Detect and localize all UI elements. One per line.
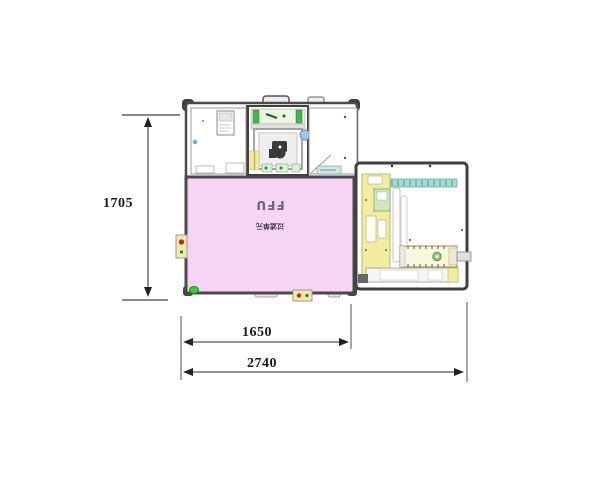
dimension-height: 1705: [103, 115, 180, 300]
dim-height-value: 1705: [103, 196, 133, 211]
green-post: [253, 110, 259, 123]
red-indicator: [179, 240, 184, 245]
equipment-layout-drawing: FFU 过滤单元: [0, 0, 600, 500]
arrowhead-left: [183, 338, 193, 346]
screenshot-root: FFU 过滤单元: [0, 0, 600, 500]
bolt-dot: [344, 116, 346, 118]
green-dot: [280, 167, 283, 170]
bolt-dot: [409, 239, 411, 241]
electrical-box-display: [219, 113, 232, 121]
ffu-sublabel: 过滤单元: [256, 222, 284, 231]
bottom-rail: [358, 268, 458, 283]
dim-total-width-value: 2740: [247, 356, 277, 371]
red-indicator: [297, 293, 301, 297]
corner-block: [358, 274, 368, 283]
arrowhead-down: [144, 287, 152, 297]
bolt-dot: [202, 120, 204, 122]
bolt-dot: [391, 165, 393, 167]
bottom-indicator-box: [293, 290, 312, 301]
floor-fixture: [226, 163, 244, 173]
bolt-dot: [429, 165, 431, 167]
right-bay-wall: [309, 108, 357, 174]
ffu-panel: FFU 过滤单元: [176, 177, 357, 301]
ffu-label: FFU: [255, 198, 284, 212]
right-bay: [309, 108, 357, 174]
yellow-strip: [250, 151, 254, 170]
actuator-rod: [457, 252, 471, 261]
yellow-strip: [255, 151, 259, 170]
green-block-window: [377, 192, 387, 200]
side-module: [356, 163, 471, 289]
arrowhead-right: [339, 338, 349, 346]
floor-fixture: [196, 166, 214, 173]
green-caster: [190, 287, 199, 294]
green-dot: [265, 167, 268, 170]
top-module: [182, 96, 360, 178]
arrowhead-up: [144, 117, 152, 127]
band-dot: [283, 115, 286, 118]
center-bay-robot-cell: [248, 106, 310, 175]
left-indicator-box: [176, 235, 187, 258]
green-indicator: [180, 250, 183, 253]
arrowhead-left: [183, 368, 193, 376]
blue-fitting: [193, 140, 197, 144]
left-bay: [191, 108, 246, 174]
dim-inner-width-value: 1650: [242, 325, 272, 340]
actuator-hub-center: [436, 255, 439, 258]
bolt-dot: [461, 229, 463, 231]
bolt-dot: [344, 157, 346, 159]
green-indicator: [305, 294, 308, 297]
ffu-panel-surface: [186, 177, 354, 293]
slat: [393, 188, 400, 262]
green-fixture: [292, 164, 300, 172]
green-post: [296, 110, 302, 123]
arrowhead-right: [454, 368, 464, 376]
